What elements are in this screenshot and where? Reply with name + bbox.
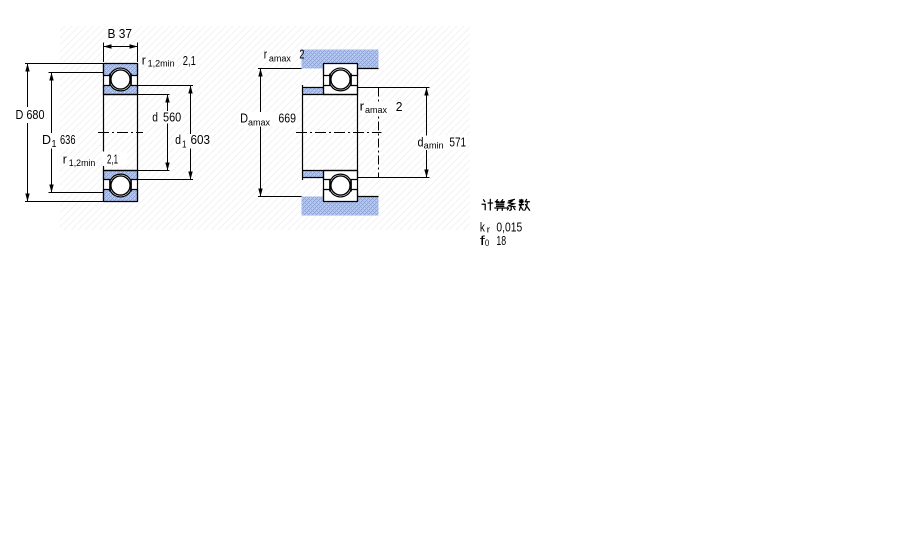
svg-text:571: 571 bbox=[449, 134, 466, 149]
svg-text:amin: amin bbox=[424, 141, 444, 151]
svg-text:r: r bbox=[63, 152, 68, 167]
svg-text:2: 2 bbox=[396, 99, 403, 114]
svg-text:amax: amax bbox=[269, 54, 291, 64]
svg-text:r: r bbox=[487, 224, 491, 234]
svg-text:636: 636 bbox=[60, 132, 76, 147]
svg-text:B 37: B 37 bbox=[108, 26, 133, 41]
svg-text:669: 669 bbox=[278, 111, 296, 126]
svg-text:2,1: 2,1 bbox=[183, 53, 196, 68]
svg-text:d: d bbox=[175, 132, 181, 147]
svg-text:d: d bbox=[152, 109, 158, 124]
svg-text:1,2min: 1,2min bbox=[69, 158, 96, 168]
svg-text:18: 18 bbox=[496, 233, 506, 248]
svg-text:2,1: 2,1 bbox=[107, 152, 118, 167]
svg-text:r: r bbox=[264, 47, 268, 62]
svg-text:1: 1 bbox=[52, 139, 57, 150]
svg-text:603: 603 bbox=[191, 132, 211, 147]
svg-text:d: d bbox=[418, 134, 424, 149]
svg-text:D: D bbox=[240, 111, 248, 126]
svg-text:1: 1 bbox=[182, 140, 187, 151]
svg-text:amax: amax bbox=[248, 118, 270, 128]
svg-text:0: 0 bbox=[485, 238, 489, 248]
svg-text:560: 560 bbox=[163, 109, 181, 124]
svg-text:amax: amax bbox=[365, 105, 387, 115]
svg-text:1,2min: 1,2min bbox=[148, 58, 175, 68]
svg-text:D: D bbox=[42, 132, 51, 147]
svg-text:r: r bbox=[360, 99, 365, 114]
svg-text:D 680: D 680 bbox=[16, 107, 45, 122]
svg-text:r: r bbox=[142, 53, 147, 68]
svg-text:2: 2 bbox=[299, 47, 304, 62]
